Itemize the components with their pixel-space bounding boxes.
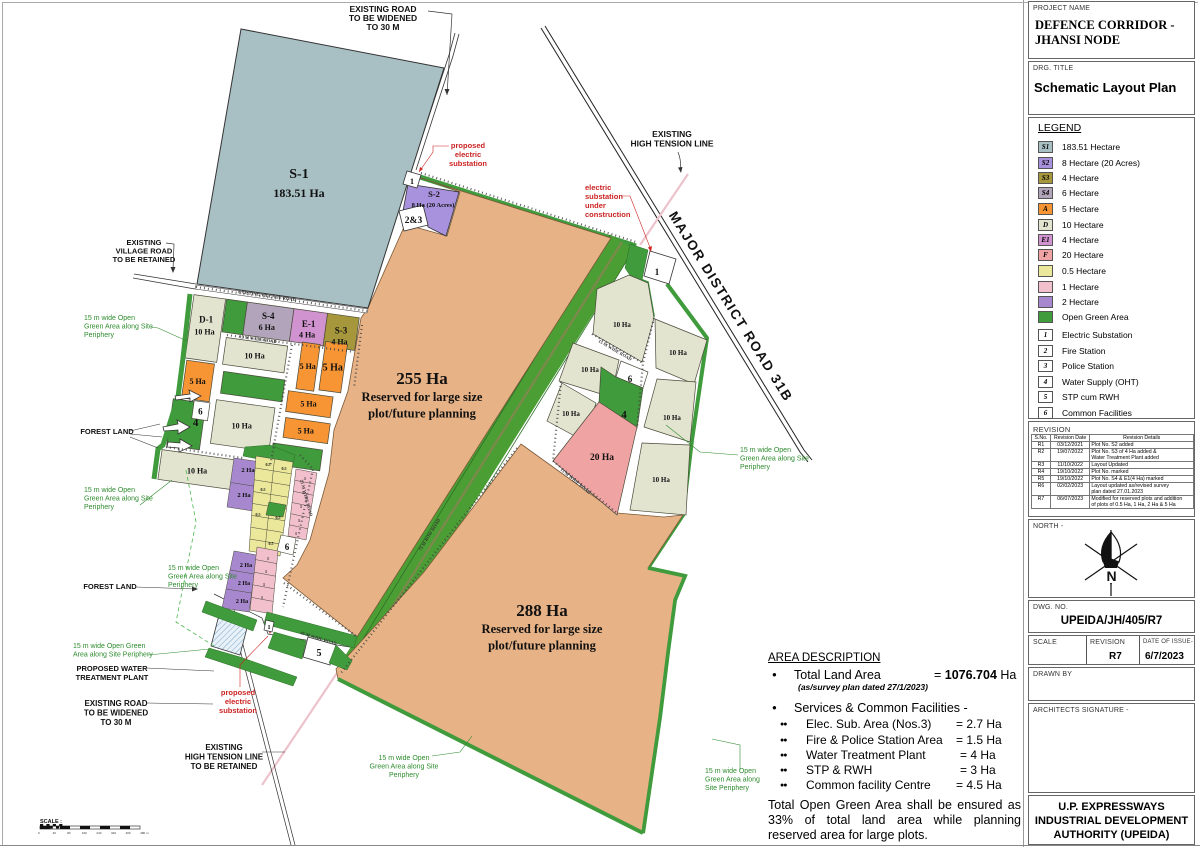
svg-text:10 Ha: 10 Ha — [663, 414, 681, 422]
svg-text:10 Ha: 10 Ha — [581, 366, 599, 374]
svg-text:40: 40 — [53, 831, 57, 835]
svg-text:288 Ha: 288 Ha — [516, 601, 568, 620]
svg-text:320: 320 — [111, 831, 116, 835]
svg-text:S-2: S-2 — [428, 189, 440, 199]
svg-text:1: 1 — [265, 569, 267, 574]
svg-text:10 Ha: 10 Ha — [245, 352, 265, 361]
svg-text:5: 5 — [317, 648, 322, 659]
svg-text:4: 4 — [193, 417, 199, 429]
svg-text:6: 6 — [285, 542, 290, 552]
svg-text:EXISTINGVILLAGE ROADTO BE RETA: EXISTINGVILLAGE ROADTO BE RETAINED — [113, 238, 176, 264]
svg-text:80: 80 — [67, 831, 71, 835]
svg-text:EXISTINGHIGH TENSION LINETO BE: EXISTINGHIGH TENSION LINETO BE RETAINED — [185, 743, 264, 771]
svg-text:5 Ha: 5 Ha — [323, 363, 343, 374]
svg-text:1: 1 — [261, 595, 263, 600]
svg-text:EXISTINGHIGH TENSION LINE: EXISTINGHIGH TENSION LINE — [630, 129, 713, 149]
svg-text:480 m: 480 m — [140, 831, 149, 835]
svg-text:10 Ha: 10 Ha — [652, 476, 670, 484]
svg-text:1: 1 — [267, 624, 270, 631]
svg-text:10 Ha: 10 Ha — [232, 422, 252, 431]
svg-text:FOREST LAND: FOREST LAND — [83, 582, 137, 591]
svg-text:10 Ha: 10 Ha — [187, 467, 207, 476]
svg-text:0.5: 0.5 — [261, 487, 266, 492]
svg-text:proposedelectricsubstation: proposedelectricsubstation — [449, 141, 487, 168]
svg-text:183.51 Ha: 183.51 Ha — [273, 186, 324, 200]
svg-text:160: 160 — [82, 831, 87, 835]
svg-text:1: 1 — [263, 582, 265, 587]
svg-text:2 Ha: 2 Ha — [238, 581, 250, 587]
svg-text:1: 1 — [267, 556, 269, 561]
svg-text:15 m wide OpenGreen Area along: 15 m wide OpenGreen Area alongSite Perip… — [705, 768, 760, 792]
svg-text:EXISTING ROADTO BE WIDENEDTO 3: EXISTING ROADTO BE WIDENEDTO 30 M — [84, 699, 149, 727]
svg-text:10 Ha: 10 Ha — [669, 349, 687, 357]
svg-text:0.5: 0.5 — [256, 512, 261, 517]
svg-text:10 Ha: 10 Ha — [562, 410, 580, 418]
svg-text:5 Ha: 5 Ha — [298, 426, 314, 435]
svg-text:FOREST LAND: FOREST LAND — [80, 427, 134, 436]
svg-text:8 Ha (20 Acres): 8 Ha (20 Acres) — [412, 202, 455, 209]
svg-text:4 Ha: 4 Ha — [331, 337, 347, 346]
svg-text:10 Ha: 10 Ha — [613, 321, 631, 329]
svg-text:2 Ha: 2 Ha — [240, 563, 252, 569]
svg-text:1: 1 — [298, 518, 300, 523]
svg-text:1: 1 — [300, 504, 302, 509]
svg-text:S-4: S-4 — [262, 311, 275, 321]
svg-text:6: 6 — [198, 407, 203, 417]
svg-text:2&3: 2&3 — [405, 216, 423, 226]
svg-text:0: 0 — [38, 831, 40, 835]
svg-text:0.5: 0.5 — [282, 466, 287, 471]
svg-text:D-1: D-1 — [199, 315, 213, 325]
svg-text:S-3: S-3 — [335, 325, 348, 335]
svg-text:2 Ha: 2 Ha — [236, 599, 248, 605]
svg-text:2 Ha: 2 Ha — [241, 467, 255, 474]
svg-text:proposedelectricsubstation: proposedelectricsubstation — [219, 688, 257, 715]
svg-text:N: N — [1106, 568, 1116, 584]
svg-text:20 Ha: 20 Ha — [590, 453, 614, 463]
svg-text:EXISTING ROADTO BE WIDENEDTO 3: EXISTING ROADTO BE WIDENEDTO 30 M — [349, 4, 417, 32]
svg-text:5 Ha: 5 Ha — [300, 362, 316, 371]
svg-text:5 Ha: 5 Ha — [300, 400, 316, 409]
svg-text:0.5: 0.5 — [269, 541, 274, 546]
svg-text:15 m wide OpenGreen Area along: 15 m wide OpenGreen Area along SitePerip… — [370, 755, 439, 779]
svg-text:10 Ha: 10 Ha — [194, 327, 214, 336]
svg-text:1: 1 — [410, 177, 414, 186]
svg-text:1: 1 — [295, 531, 297, 536]
svg-text:255 Ha: 255 Ha — [396, 369, 448, 388]
svg-text:1: 1 — [655, 267, 660, 277]
svg-text:4 Ha: 4 Ha — [299, 331, 315, 340]
svg-text:E-1: E-1 — [302, 319, 316, 329]
svg-text:400: 400 — [126, 831, 131, 835]
svg-text:SCALE :: SCALE : — [40, 819, 62, 825]
svg-text:PROPOSED WATERTREATMENT PLANT: PROPOSED WATERTREATMENT PLANT — [76, 664, 149, 682]
svg-text:15 m wide Open GreenArea along: 15 m wide Open GreenArea along Site Peri… — [73, 643, 153, 659]
svg-text:0.5: 0.5 — [276, 515, 281, 520]
svg-text:15 m wide OpenGreen Area along: 15 m wide OpenGreen Area along SitePerip… — [84, 487, 153, 511]
svg-text:15 m wide OpenGreen Area along: 15 m wide OpenGreen Area along SitePerip… — [84, 315, 153, 339]
svg-text:5 Ha: 5 Ha — [189, 377, 205, 386]
svg-text:240: 240 — [96, 831, 101, 835]
svg-text:electricsubstationunderconstru: electricsubstationunderconstruction — [585, 183, 631, 219]
svg-text:S-1: S-1 — [289, 167, 308, 182]
svg-text:0.5: 0.5 — [266, 462, 271, 467]
svg-text:2 Ha: 2 Ha — [237, 492, 251, 499]
svg-text:6 Ha: 6 Ha — [259, 323, 275, 332]
